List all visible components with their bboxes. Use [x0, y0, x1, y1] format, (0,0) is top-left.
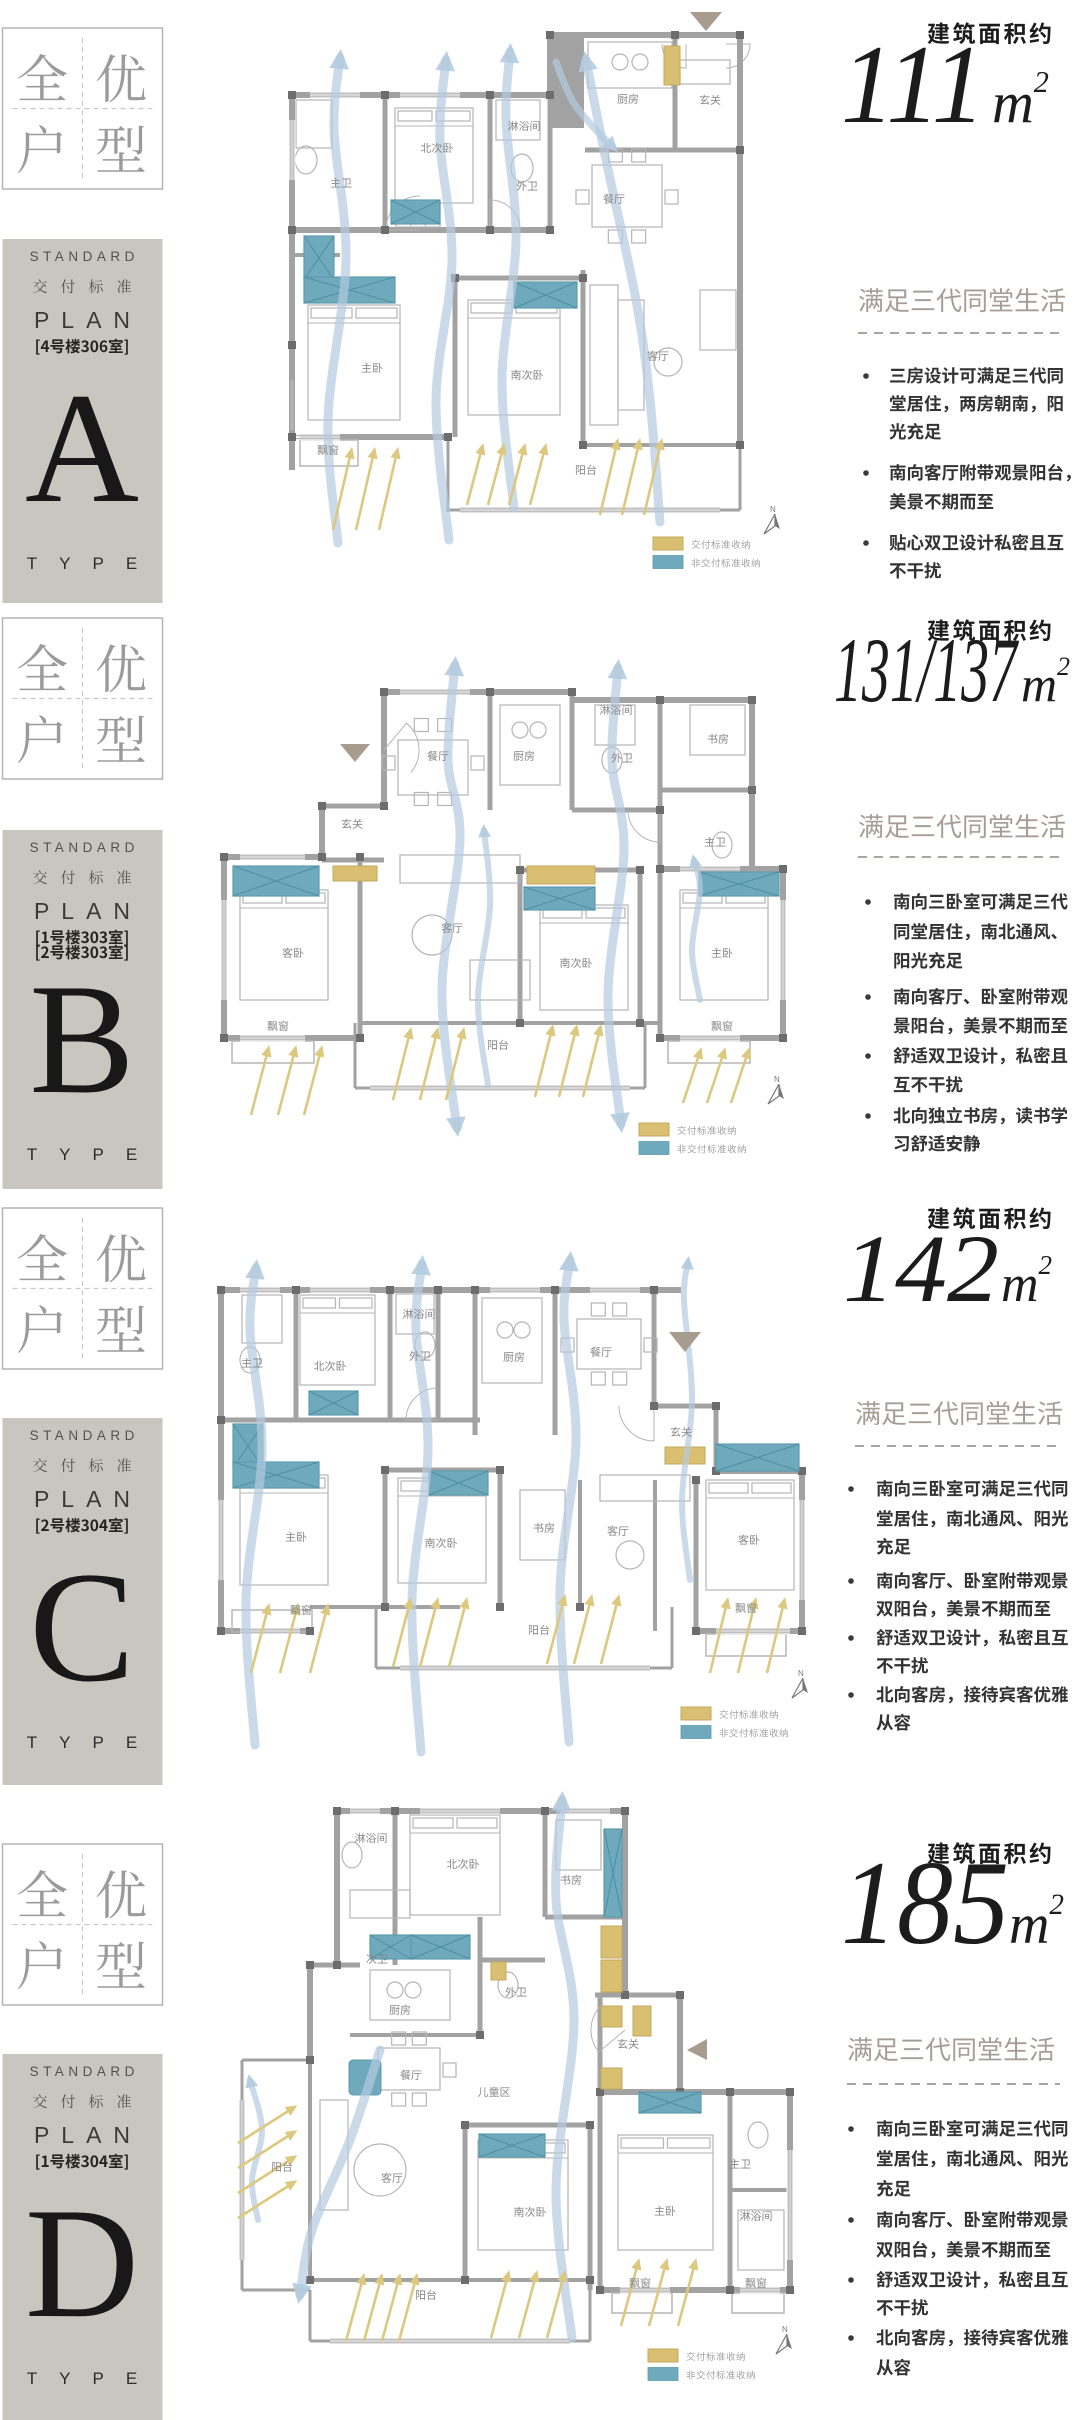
svg-text:PLAN: PLAN [34, 307, 142, 333]
svg-text:m: m [1009, 1894, 1049, 1956]
svg-text:N: N [782, 2325, 788, 2334]
svg-text:2: 2 [1049, 1889, 1064, 1921]
svg-text:A: A [25, 361, 139, 536]
svg-text:131/137: 131/137 [834, 619, 1019, 721]
svg-text:C: C [29, 1540, 134, 1715]
svg-text:PLAN: PLAN [34, 2122, 142, 2148]
svg-text:STANDARD: STANDARD [30, 840, 139, 855]
svg-text:N: N [770, 505, 776, 514]
svg-text:D: D [25, 2176, 139, 2351]
svg-text:PLAN: PLAN [34, 898, 142, 924]
svg-text:STANDARD: STANDARD [30, 249, 139, 264]
svg-text:2: 2 [1057, 652, 1070, 681]
svg-text:PLAN: PLAN [34, 1486, 142, 1512]
svg-text:111: 111 [841, 23, 985, 147]
svg-text:2: 2 [1034, 65, 1049, 99]
svg-text:N: N [798, 1669, 804, 1678]
svg-text:TYPE: TYPE [27, 1145, 159, 1164]
svg-text:STANDARD: STANDARD [30, 2064, 139, 2079]
svg-text:N: N [774, 1075, 780, 1084]
svg-text:185: 185 [841, 1836, 1009, 1969]
svg-text:TYPE: TYPE [27, 1733, 159, 1752]
svg-text:m: m [1001, 1256, 1039, 1313]
svg-text:m: m [1021, 656, 1057, 712]
svg-text:STANDARD: STANDARD [30, 1428, 139, 1443]
svg-text:TYPE: TYPE [27, 2369, 159, 2388]
svg-text:142: 142 [843, 1215, 999, 1322]
svg-text:TYPE: TYPE [27, 554, 159, 573]
svg-text:m: m [992, 70, 1034, 135]
svg-text:2: 2 [1038, 1250, 1052, 1280]
svg-text:B: B [29, 952, 134, 1127]
